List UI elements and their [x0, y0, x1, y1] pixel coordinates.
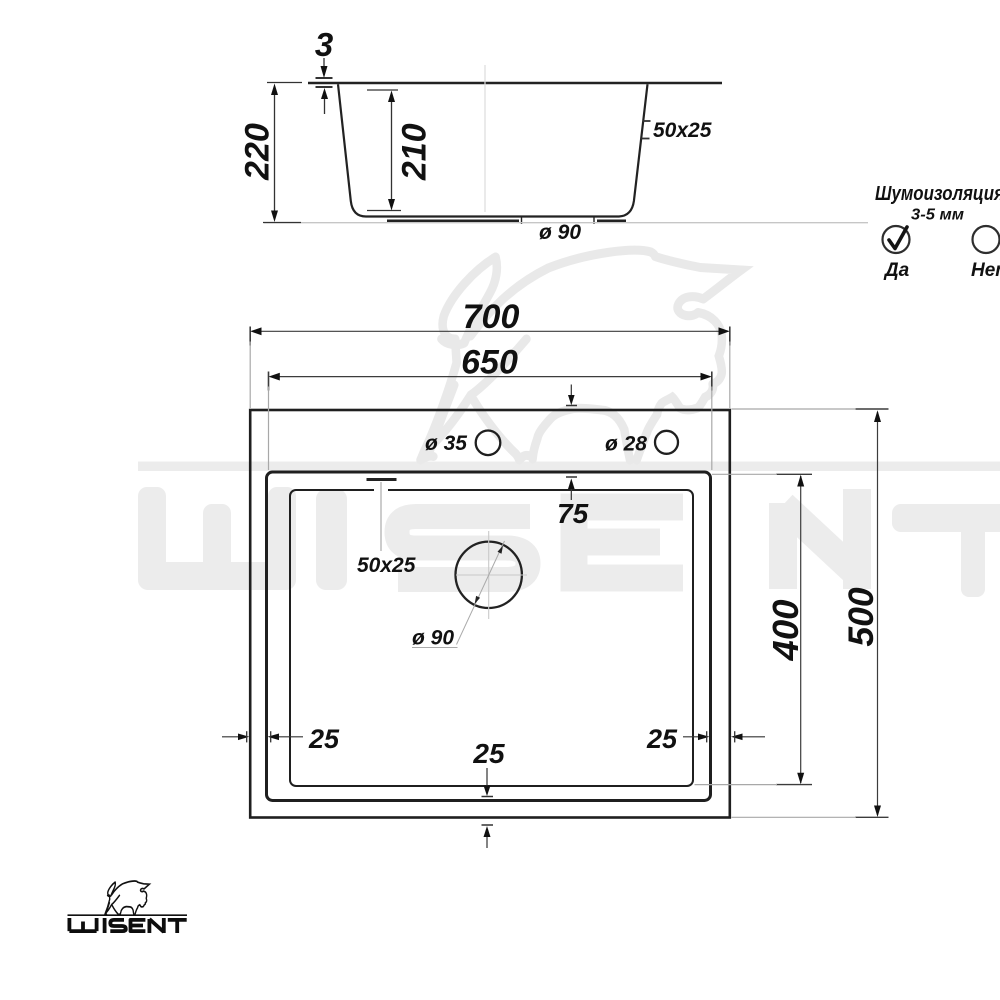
- svg-text:ø 28: ø 28: [605, 433, 647, 456]
- svg-text:3: 3: [315, 26, 333, 63]
- svg-text:ø 90: ø 90: [412, 627, 454, 650]
- svg-text:Да: Да: [883, 260, 910, 281]
- svg-text:25: 25: [646, 724, 678, 754]
- svg-text:25: 25: [472, 738, 505, 769]
- svg-text:Шумоизоляция: Шумоизоляция: [875, 182, 1000, 205]
- svg-text:500: 500: [841, 587, 881, 646]
- svg-text:25: 25: [308, 724, 340, 754]
- svg-text:75: 75: [557, 498, 589, 529]
- svg-text:400: 400: [765, 600, 806, 662]
- svg-text:3-5 мм: 3-5 мм: [911, 207, 964, 224]
- svg-text:ø 90: ø 90: [539, 221, 581, 244]
- svg-text:700: 700: [463, 298, 520, 336]
- svg-text:210: 210: [396, 123, 434, 181]
- svg-text:Нет: Нет: [971, 260, 1000, 281]
- svg-text:50x25: 50x25: [653, 119, 712, 142]
- svg-text:50x25: 50x25: [357, 554, 416, 577]
- svg-text:220: 220: [238, 123, 276, 181]
- svg-text:ø 35: ø 35: [425, 432, 467, 455]
- svg-text:650: 650: [461, 344, 518, 382]
